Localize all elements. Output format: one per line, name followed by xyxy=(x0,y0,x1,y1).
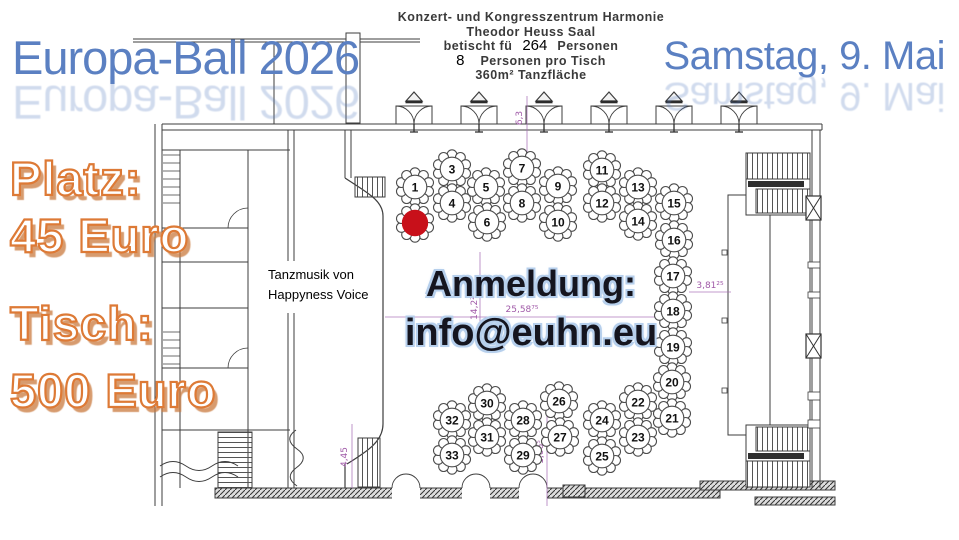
table-16: 16 xyxy=(656,221,693,259)
table-3: 3 xyxy=(434,150,471,188)
table-25: 25 xyxy=(584,437,621,475)
table-10: 10 xyxy=(540,203,577,241)
table-6: 6 xyxy=(469,203,506,241)
table-33: 33 xyxy=(434,436,471,474)
table-32: 32 xyxy=(434,401,471,439)
svg-text:11: 11 xyxy=(596,163,609,177)
door-icon xyxy=(396,92,432,132)
svg-text:13: 13 xyxy=(631,180,645,194)
svg-text:6: 6 xyxy=(484,215,491,229)
table-20: 20 xyxy=(654,363,691,401)
svg-text:18: 18 xyxy=(666,304,680,318)
sold-table-marker xyxy=(397,204,434,242)
svg-text:28: 28 xyxy=(516,413,530,427)
svg-text:23: 23 xyxy=(631,430,645,444)
table-7: 7 xyxy=(504,149,541,187)
table-26: 26 xyxy=(541,382,578,420)
table-30: 30 xyxy=(469,384,506,422)
event-date-reflection: Samstag, 9. Mai xyxy=(663,76,945,116)
table-31: 31 xyxy=(469,418,506,456)
dimension-label: 4,45 xyxy=(340,447,350,467)
music-line1: Tanzmusik von xyxy=(268,265,382,285)
svg-text:29: 29 xyxy=(516,448,530,462)
table-5: 5 xyxy=(468,168,505,206)
svg-text:17: 17 xyxy=(666,269,680,283)
table-29: 29 xyxy=(505,436,542,474)
poster-canvas: 6,314,2²25,58⁷⁵3,81²⁵4,451,66⁵ 134567891… xyxy=(0,0,959,540)
dimension-label: 3,81²⁵ xyxy=(696,281,724,291)
table-12: 12 xyxy=(584,184,621,222)
table-21: 21 xyxy=(654,399,691,437)
registration-email: info@euhn.eu xyxy=(398,314,664,352)
svg-text:4: 4 xyxy=(449,196,456,210)
door-icon xyxy=(526,92,562,132)
seated-prefix: betischt fü xyxy=(444,39,513,53)
door-icon xyxy=(591,92,627,132)
staircase xyxy=(358,438,380,487)
door-icon xyxy=(461,92,497,132)
per-table-count: 8 xyxy=(456,52,464,69)
dimension-label: 6,3 xyxy=(515,111,525,125)
table-13: 13 xyxy=(620,168,657,206)
staircase xyxy=(218,432,252,488)
price-table-label: Tisch: xyxy=(10,300,154,347)
svg-text:1: 1 xyxy=(412,180,419,194)
column-icon xyxy=(806,334,821,358)
music-line2: Happyness Voice xyxy=(268,285,382,305)
svg-text:20: 20 xyxy=(665,375,679,389)
svg-text:32: 32 xyxy=(445,413,459,427)
table-9: 9 xyxy=(540,167,577,205)
registration-label: Anmeldung: xyxy=(398,266,664,302)
svg-text:10: 10 xyxy=(551,215,565,229)
staircase xyxy=(355,177,385,197)
svg-text:14: 14 xyxy=(631,214,645,228)
venue-info: Konzert- und Kongresszentrum Harmonie Th… xyxy=(366,10,696,83)
table-28: 28 xyxy=(505,401,542,439)
event-title-reflection: Europa-Ball 2026 xyxy=(12,79,359,126)
price-table-value: 500 Euro xyxy=(10,367,217,414)
svg-text:7: 7 xyxy=(519,161,526,175)
svg-text:19: 19 xyxy=(666,340,680,354)
svg-text:22: 22 xyxy=(631,395,645,409)
seated-capacity-line: betischt fü264Personen xyxy=(366,39,696,54)
per-table-line: 8Personen pro Tisch xyxy=(366,54,696,69)
price-seat-label: Platz: xyxy=(10,155,141,202)
svg-text:24: 24 xyxy=(595,413,609,427)
table-22: 22 xyxy=(620,383,657,421)
svg-text:33: 33 xyxy=(445,448,459,462)
seated-suffix: Personen xyxy=(557,39,618,53)
svg-text:27: 27 xyxy=(553,430,567,444)
table-15: 15 xyxy=(656,184,693,222)
dance-floor-line: 360m² Tanzfläche xyxy=(366,68,696,83)
svg-text:16: 16 xyxy=(667,233,681,247)
column-icon xyxy=(806,196,821,220)
seated-count: 264 xyxy=(522,37,547,54)
table-14: 14 xyxy=(620,202,657,240)
price-seat-value: 45 Euro xyxy=(10,212,189,259)
svg-text:21: 21 xyxy=(665,411,679,425)
music-box: Tanzmusik von Happyness Voice xyxy=(262,261,382,313)
per-table-text: Personen pro Tisch xyxy=(480,54,605,68)
svg-text:30: 30 xyxy=(480,396,494,410)
svg-text:25: 25 xyxy=(595,449,609,463)
table-23: 23 xyxy=(620,418,657,456)
svg-text:8: 8 xyxy=(519,196,526,210)
svg-text:26: 26 xyxy=(552,394,566,408)
svg-text:15: 15 xyxy=(667,196,681,210)
table-27: 27 xyxy=(542,418,579,456)
svg-text:5: 5 xyxy=(483,180,490,194)
event-title: Europa-Ball 2026 xyxy=(12,34,359,81)
svg-text:3: 3 xyxy=(449,162,456,176)
venue-name: Konzert- und Kongresszentrum Harmonie xyxy=(366,10,696,25)
table-4: 4 xyxy=(434,184,471,222)
event-date: Samstag, 9. Mai xyxy=(663,36,945,76)
table-1: 1 xyxy=(397,168,434,206)
svg-text:12: 12 xyxy=(595,196,609,210)
table-24: 24 xyxy=(584,401,621,439)
svg-text:9: 9 xyxy=(555,179,562,193)
table-8: 8 xyxy=(504,184,541,222)
svg-text:31: 31 xyxy=(480,430,494,444)
